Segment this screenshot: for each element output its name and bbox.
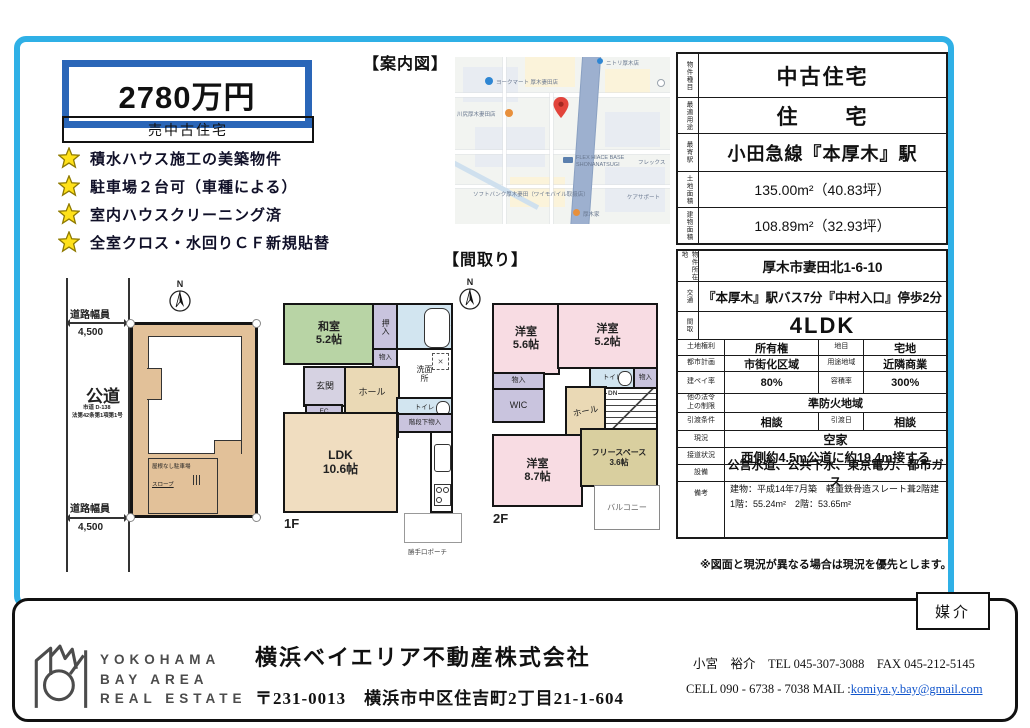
room-label: 物入 (379, 354, 392, 361)
logo-line: BAY AREA (100, 670, 247, 690)
row-value2: 300% (864, 372, 946, 393)
row-label: 現況 (678, 431, 725, 447)
feature-text: 室内ハウスクリーニング済 (90, 204, 282, 225)
row-label: 最寄駅 (678, 134, 699, 171)
row-value: 中古住宅 (699, 54, 946, 97)
map-section-title: 【案内図】 (363, 50, 448, 74)
table-row: 設備 公営水道、公共下水、東京電力、都市ガス (678, 464, 946, 481)
feature-text: 積水ハウス施工の美築物件 (90, 148, 282, 169)
room-label: 押入 (381, 319, 390, 335)
location-map: ヨークマート 厚木妻田店 ニトリ厚木店 川尻厚木妻田店 FLEX HIACE B… (455, 57, 670, 224)
star-icon (58, 147, 80, 169)
room-label: 物入 (639, 374, 652, 381)
north-compass: N (168, 280, 192, 315)
row-value: 108.89m²（32.93坪） (699, 208, 946, 243)
row-value: 80% (725, 372, 818, 393)
map-poi-icon (563, 157, 573, 163)
row-value: 小田急線『本厚木』駅 (699, 134, 946, 171)
table-row: 都市計画 市街化区域 用途地域 近隣商業 (678, 355, 946, 371)
porch-label: 勝手口ポーチ (408, 546, 447, 556)
room-label: フリースペース (592, 448, 647, 457)
row-value: 4LDK (699, 312, 946, 339)
map-block (475, 127, 545, 167)
agent-contact: 小宮 裕介 TEL 045-307-3088 FAX 045-212-5145 (693, 653, 975, 672)
table-row: 備考 建物：平成14年7月築 軽量鉄骨造スレート葺2階建 1階：55.24m² … (678, 481, 946, 537)
row-label: 設備 (678, 465, 725, 481)
table-row: 建ペイ率 80% 容積率 300% (678, 371, 946, 393)
row-label2: 地目 (818, 340, 864, 355)
lot-corner-marker (252, 513, 261, 522)
row-value2: 宅地 (864, 340, 946, 355)
lot-corner-marker (126, 319, 135, 328)
room-label: ホール (572, 404, 599, 419)
balcony: バルコニー (594, 485, 660, 530)
listing-type: 売中古住宅 (148, 120, 228, 140)
room-label: LDK (328, 449, 353, 463)
dimension-arrow (68, 322, 126, 324)
row-value: 空家 (725, 431, 946, 447)
room-label: WIC (510, 400, 528, 410)
site-house-notch (147, 368, 162, 400)
lot-corner-marker (126, 513, 135, 522)
property-table-top: 物件種目 中古住宅 最適用途 住 宅 最寄駅 小田急線『本厚木』駅 土地面積 1… (676, 52, 948, 245)
road-width-label: 道路幅員 (70, 500, 110, 515)
room-size: 5.6帖 (513, 339, 539, 352)
row-value: 住 宅 (699, 98, 946, 133)
row-label: 間取 (678, 312, 699, 339)
row-label: 他の法令 上の制限 (678, 394, 725, 412)
cell-mail-line: CELL 090 - 6738 - 7038 MAIL :komiya.y.ba… (686, 682, 983, 697)
room-kaidan-shita: 階段下物入 (397, 413, 453, 433)
bathtub-icon (424, 308, 450, 348)
row-label: 接道状況 (678, 448, 725, 464)
row-label2: 引渡日 (818, 413, 864, 430)
table-row: 間取 4LDK (678, 311, 946, 339)
map-poi-label: 川尻厚木妻田店 (457, 110, 503, 118)
map-poi-icon (485, 77, 493, 85)
toilet-icon (618, 371, 632, 386)
floor2-label: 2F (493, 511, 508, 526)
map-poi-label: 厚木家 (583, 210, 600, 218)
feature-item: 全室クロス・水回りＣＦ新規貼替 (58, 230, 330, 254)
row-value: 相談 (725, 413, 818, 430)
row-label: 建ペイ率 (678, 372, 725, 393)
room-monoire-2f-right: 物入 (633, 367, 658, 389)
room-wic: WIC (492, 388, 545, 423)
map-poi-label: ニトリ厚木店 (606, 59, 639, 67)
remarks-line2: 1階：55.24m² 2階：53.65m² (730, 497, 851, 512)
room-oshiire: 押入 (372, 303, 399, 351)
row-value: 厚木市妻田北1-6-10 (699, 251, 946, 281)
map-poi-label: ケアサポート (627, 193, 660, 201)
room-label: バルコニー (607, 502, 647, 513)
north-label: N (467, 277, 474, 287)
disclaimer-note: ※図面と現況が異なる場合は現況を優先とします。 (700, 556, 952, 572)
map-poi-label: FLEX HIACE BASE SHONANATSUGI (576, 155, 634, 168)
row-value: 公営水道、公共下水、東京電力、都市ガス (725, 465, 946, 481)
stairs-down-label: DN (607, 390, 618, 397)
road-sub1: 市道 D-138 (83, 403, 111, 411)
row-label: 最適用途 (678, 98, 699, 133)
stove-icon (434, 484, 451, 506)
table-row: 最適用途 住 宅 (678, 97, 946, 133)
row-value: 準防火地域 (725, 394, 946, 412)
table-row: 現況 空家 (678, 430, 946, 447)
room-label: 和室 (318, 321, 340, 334)
map-poi-label: ヨークマート 厚木妻田店 (496, 78, 558, 86)
washing-machine-icon: ✕ (432, 353, 449, 370)
map-block (605, 167, 665, 212)
room-bedroom2: 洋室 5.2帖 (557, 303, 658, 369)
row-value: 135.00m²（40.83坪） (699, 172, 946, 207)
company-logo-text: YOKOHAMA BAY AREA REAL ESTATE (100, 650, 247, 709)
floor1-label: 1F (284, 516, 299, 531)
row-label2: 用途地域 (818, 356, 864, 371)
row-label: 物件種目 (678, 54, 699, 97)
listing-type-box: 売中古住宅 (62, 116, 314, 143)
map-block (605, 69, 650, 95)
room-size: 10.6帖 (323, 463, 358, 477)
row-label-line2: 上の制限 (687, 403, 715, 412)
slope-hatch (193, 475, 201, 485)
room-genkan: 玄関 (303, 366, 347, 407)
room-bedroom1: 洋室 5.6帖 (492, 303, 560, 375)
map-pin-icon (553, 97, 569, 119)
logo-line: REAL ESTATE (100, 689, 247, 709)
row-label: 土地権利 (678, 340, 725, 355)
row-value2: 近隣商業 (864, 356, 946, 371)
map-road (455, 150, 670, 154)
road-width-value: 4,500 (78, 522, 103, 533)
site-house-notch (214, 440, 241, 454)
map-block (605, 112, 660, 147)
row-value: 建物：平成14年7月築 軽量鉄骨造スレート葺2階建 1階：55.24m² 2階：… (725, 482, 946, 537)
road-width-label: 道路幅員 (70, 306, 110, 321)
cell-number: CELL 090 - 6738 - 7038 MAIL : (686, 682, 851, 696)
row-label: 引渡条件 (678, 413, 725, 430)
agency-type-badge: 媒介 (916, 592, 990, 630)
star-icon (58, 203, 80, 225)
room-label: 洗面所 (417, 365, 433, 383)
feature-item: 駐車場２台可（車種による） (58, 174, 298, 198)
room-label: トイレ (415, 404, 435, 411)
room-size: 8.7帖 (524, 471, 550, 484)
table-row: 最寄駅 小田急線『本厚木』駅 (678, 133, 946, 171)
company-logo-icon (30, 640, 94, 712)
room-size: 5.2帖 (316, 334, 342, 347)
map-poi-icon (573, 209, 580, 216)
row-value: 市街化区域 (725, 356, 818, 371)
parking-label: 屋根なし駐車場 (152, 462, 214, 470)
real-estate-flyer: 2780万円 売中古住宅 積水ハウス施工の美築物件 駐車場２台可（車種による） … (0, 0, 1030, 728)
row-value: 所有権 (725, 340, 818, 355)
row-label: 都市計画 (678, 356, 725, 371)
room-label: 物入 (512, 377, 526, 385)
map-poi-icon (505, 109, 513, 117)
price-amount: 2780万円 (119, 72, 256, 117)
row-value: 『本厚木』駅バス7分『中村入口』停歩2分 (699, 282, 946, 311)
room-label: ホール (358, 387, 385, 397)
row-label: 交通 (678, 282, 699, 311)
row-label: 建物面積 (678, 208, 699, 243)
compass-icon (168, 289, 192, 313)
room-free-space: フリースペース 3.6帖 (580, 428, 658, 487)
compass-icon (458, 287, 482, 311)
company-name: 横浜ベイエリア不動産株式会社 (255, 640, 591, 672)
row-label: 物件所在地 (678, 251, 699, 281)
room-bedroom3: 洋室 8.7帖 (492, 434, 583, 507)
remarks-line1: 建物：平成14年7月築 軽量鉄骨造スレート葺2階建 (730, 482, 939, 497)
table-row: 土地権利 所有権 地目 宅地 (678, 339, 946, 355)
room-label: 洋室 (597, 323, 619, 336)
row-value2: 相談 (864, 413, 946, 430)
porch-outline (404, 513, 462, 543)
table-row: 物件種目 中古住宅 (678, 54, 946, 97)
map-road (455, 185, 670, 188)
logo-line: YOKOHAMA (100, 650, 247, 670)
floorplan-section-title: 【間取り】 (443, 246, 528, 270)
map-poi-label: フレックス (638, 158, 665, 166)
room-size: 5.2帖 (594, 336, 620, 349)
kitchen-sink-icon (434, 444, 451, 472)
star-icon (58, 231, 80, 253)
map-poi-icon (597, 58, 603, 64)
road-width-value: 4,500 (78, 327, 103, 338)
feature-item: 積水ハウス施工の美築物件 (58, 146, 282, 170)
map-poi-icon (657, 79, 665, 87)
table-row: 引渡条件 相談 引渡日 相談 (678, 412, 946, 430)
row-label2: 容積率 (818, 372, 864, 393)
site-house-outline (148, 336, 242, 454)
table-row: 物件所在地 厚木市妻田北1-6-10 (678, 251, 946, 281)
slope-label: スロープ (152, 480, 214, 488)
road-sub2: 法第42条第1項第1号 (72, 411, 123, 419)
row-label: 土地面積 (678, 172, 699, 207)
table-row: 建物面積 108.89m²（32.93坪） (678, 207, 946, 243)
map-poi-label: ソフトバンク厚木妻田（ワイモバイル取扱店） (473, 190, 589, 198)
feature-item: 室内ハウスクリーニング済 (58, 202, 282, 226)
property-table-main: 物件所在地 厚木市妻田北1-6-10 交通 『本厚木』駅バス7分『中村入口』停歩… (676, 249, 948, 539)
room-label: 玄関 (316, 381, 334, 391)
room-label: 洋室 (527, 458, 549, 471)
site-parking: 屋根なし駐車場 スロープ (148, 458, 218, 514)
room-label: 洋室 (515, 326, 537, 339)
email-link[interactable]: komiya.y.bay@gmail.com (851, 682, 983, 696)
feature-text: 全室クロス・水回りＣＦ新規貼替 (90, 232, 330, 253)
table-row: 交通 『本厚木』駅バス7分『中村入口』停歩2分 (678, 281, 946, 311)
table-row: 他の法令 上の制限 準防火地域 (678, 393, 946, 412)
company-address: 〒231-0013 横浜市中区住吉町2丁目21-1-604 (255, 684, 624, 709)
row-label: 備考 (678, 482, 725, 537)
room-size: 3.6帖 (609, 458, 628, 467)
lot-corner-marker (252, 319, 261, 328)
room-label: 階段下物入 (409, 419, 442, 426)
room-ldk: LDK 10.6帖 (283, 412, 398, 513)
feature-text: 駐車場２台可（車種による） (90, 176, 298, 197)
north-label: N (177, 279, 184, 289)
dimension-arrow (68, 517, 126, 519)
star-icon (58, 175, 80, 197)
row-label-line1: 他の法令 (687, 394, 715, 403)
room-monoire-1f: 物入 (372, 348, 399, 368)
room-washitsu: 和室 5.2帖 (283, 303, 375, 365)
table-row: 土地面積 135.00m²（40.83坪） (678, 171, 946, 207)
north-compass: N (458, 278, 482, 313)
